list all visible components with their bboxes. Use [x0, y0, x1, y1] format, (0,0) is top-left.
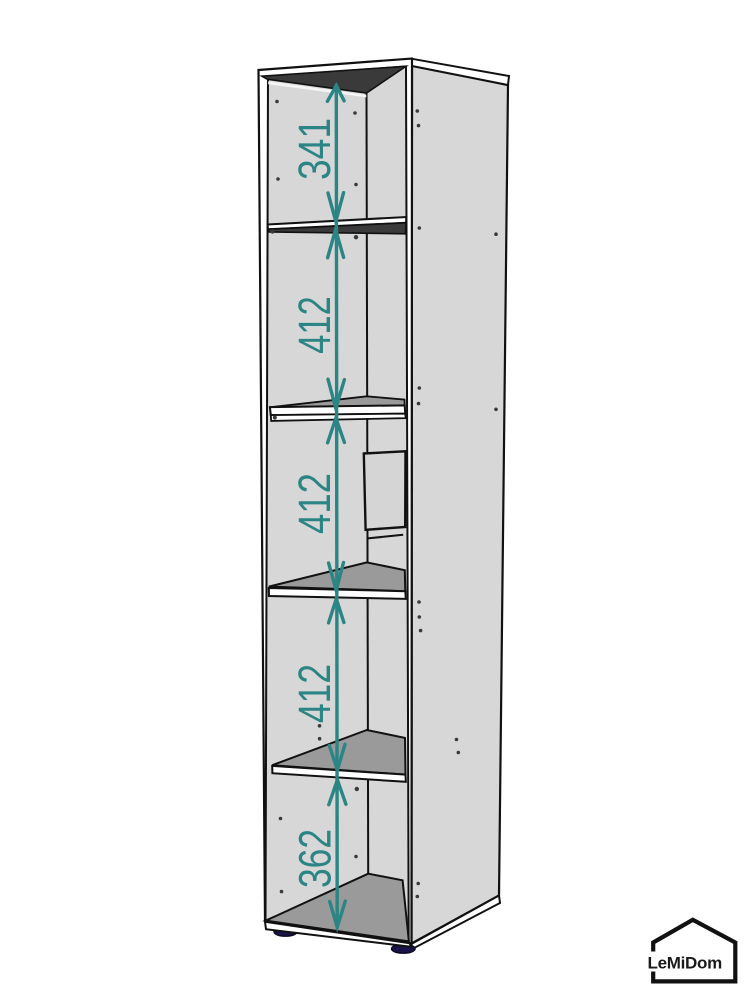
svg-text:LeMiDom: LeMiDom [648, 954, 723, 973]
svg-text:412: 412 [289, 664, 340, 723]
svg-text:362: 362 [290, 829, 341, 888]
svg-text:412: 412 [289, 473, 340, 534]
svg-text:341: 341 [289, 118, 340, 180]
svg-text:412: 412 [289, 296, 340, 354]
